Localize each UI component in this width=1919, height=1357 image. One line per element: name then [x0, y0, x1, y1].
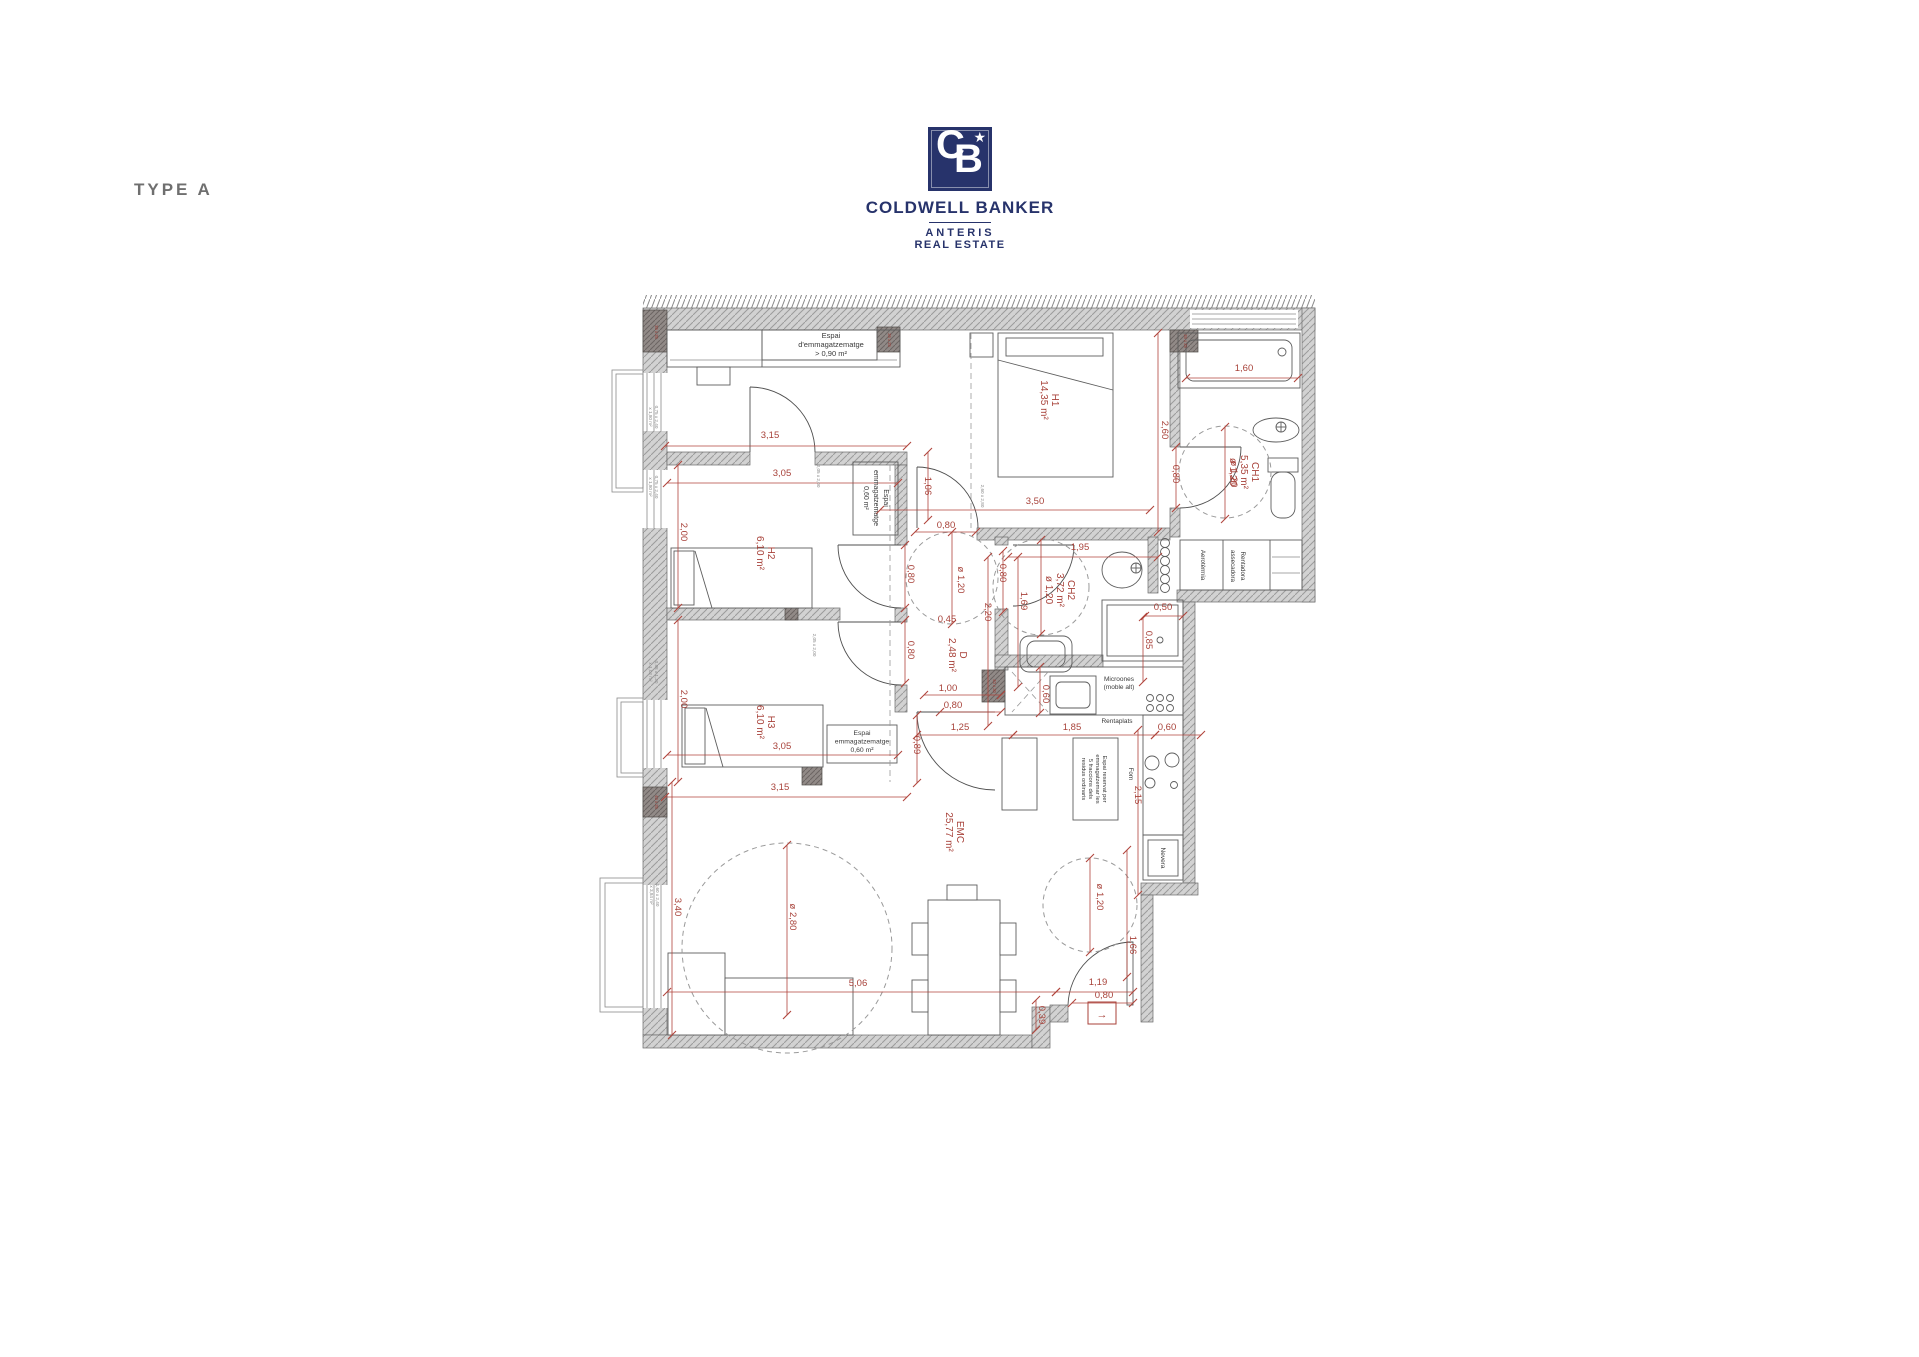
dimension-label: 3,05	[773, 741, 792, 752]
window-spec-label: 0,75 x 2,40x 1,80 m²	[648, 476, 659, 499]
svg-text:1,60: 1,60	[1235, 363, 1254, 374]
annotation-label: Espai reservat peremmagatzemar les5 frac…	[1080, 754, 1107, 803]
svg-text:2,05 x 2,00: 2,05 x 2,00	[816, 465, 821, 488]
window-spec-label: 1,60 x 2,40x 3,84 m²	[649, 884, 660, 907]
dimension-label: 0,89	[911, 736, 922, 755]
pillar-spec-label: 40 x 25	[654, 795, 659, 809]
window-icon	[641, 885, 669, 1008]
window-spec-labels: 0,75 x 2,40x 1,80 m²0,75 x 2,40x 1,80 m²…	[648, 406, 985, 907]
dimension-label: 0,80	[937, 520, 956, 531]
svg-text:14,35 m²: 14,35 m²	[1038, 380, 1049, 420]
svg-text:H1: H1	[1049, 394, 1060, 407]
dining-table	[912, 885, 1016, 1035]
kitchen-island	[1002, 738, 1037, 810]
svg-text:0,60 m²: 0,60 m²	[862, 486, 869, 510]
svg-text:2,60: 2,60	[1159, 421, 1170, 440]
sink-ch1	[1253, 418, 1299, 442]
sink-ch2	[1102, 552, 1142, 588]
svg-text:1,69: 1,69	[1018, 592, 1029, 611]
annotation-label: Rentaplats	[1101, 718, 1133, 725]
svg-text:0,39: 0,39	[1036, 1006, 1047, 1025]
svg-text:2,00: 2,00	[678, 690, 689, 709]
pillar	[802, 765, 822, 785]
dimension-label: 0,80	[905, 565, 916, 584]
svg-text:1,25: 1,25	[951, 722, 970, 733]
annotation-label: Rentadoraassecadora	[1229, 550, 1246, 583]
svg-text:3,40: 3,40	[672, 898, 683, 917]
svg-text:3,50: 3,50	[1026, 496, 1045, 507]
dimension-label: 0,80	[1170, 465, 1181, 484]
window-icon	[1190, 310, 1298, 328]
dimension-label: 5,06	[849, 978, 868, 989]
page: TYPE A C B ★ COLDWELL BANKER ANTERIS REA…	[0, 0, 1919, 1357]
svg-text:→: →	[1097, 1009, 1108, 1021]
annotation-label: Espaiemmagatzematge0,60 m²	[835, 730, 890, 754]
svg-text:5 fraccions dels: 5 fraccions dels	[1087, 759, 1093, 799]
svg-text:0,60: 0,60	[1158, 722, 1177, 733]
pillar-spec-label: 40 x 30	[992, 679, 997, 693]
sofa	[668, 953, 853, 1035]
svg-text:Rentaplats: Rentaplats	[1101, 718, 1133, 725]
balcony	[600, 370, 643, 1012]
svg-text:0,80: 0,80	[937, 520, 956, 531]
svg-text:EMC: EMC	[954, 821, 965, 843]
svg-text:2,15: 2,15	[1132, 786, 1143, 805]
svg-text:35 x 25: 35 x 25	[1183, 334, 1188, 348]
svg-text:0,50: 0,50	[1154, 602, 1173, 613]
svg-text:ø 1,20: ø 1,20	[955, 567, 966, 594]
annotation-label: Espaid'emmagatzematge> 0,90 m²	[798, 331, 864, 358]
svg-text:3,05: 3,05	[773, 468, 792, 479]
dimension-label: 2,15	[1132, 786, 1143, 805]
svg-text:0,60 m²: 0,60 m²	[850, 747, 874, 754]
dimension-label: 1,95	[1071, 542, 1090, 553]
dimension-label: 2,60	[1159, 421, 1170, 440]
svg-text:1,06: 1,06	[922, 477, 933, 496]
dimension-label: 3,40	[672, 898, 683, 917]
dimension-label: 3,15	[771, 782, 790, 793]
svg-text:0,80: 0,80	[1095, 990, 1114, 1001]
dimension-label: 0,60	[1158, 722, 1177, 733]
room-label: CH23,72 m²ø 1,20	[1043, 573, 1076, 608]
svg-text:0,80: 0,80	[944, 700, 963, 711]
svg-text:Rentadora: Rentadora	[1239, 552, 1246, 581]
svg-text:35 x 25: 35 x 25	[887, 333, 892, 347]
room-label: D2,48 m²	[946, 638, 968, 673]
dimension-label: ø 1,20	[1094, 884, 1105, 911]
svg-text:0,88 x 1,20: 0,88 x 1,20	[654, 661, 659, 684]
svg-text:6,10 m²: 6,10 m²	[754, 536, 765, 571]
svg-text:H3: H3	[765, 716, 776, 729]
annotation-label: Espaiemmagatzematge0,60 m²	[862, 470, 889, 526]
room-label: EMC25,77 m²	[943, 812, 965, 852]
room-label: CH15,35 m²ø 1,20	[1227, 455, 1260, 490]
svg-text:CH1: CH1	[1249, 462, 1260, 482]
svg-text:0,60: 0,60	[1040, 685, 1051, 704]
annotation-label: Microones(moble alt)	[1104, 676, 1135, 691]
pillar-spec-label: 35 x 25	[654, 325, 659, 339]
dimension-label: 0,85	[1143, 631, 1154, 650]
svg-text:Forn: Forn	[1127, 768, 1134, 781]
svg-text:40 x 25: 40 x 25	[654, 795, 659, 809]
dimension-label: 1,85	[1063, 722, 1082, 733]
svg-text:0,75 x 2,40: 0,75 x 2,40	[654, 406, 659, 429]
svg-text:0,80: 0,80	[1170, 465, 1181, 484]
svg-text:CH2: CH2	[1065, 580, 1076, 600]
svg-text:Microones: Microones	[1104, 676, 1135, 683]
svg-text:5,06: 5,06	[849, 978, 868, 989]
svg-text:ø 1,20: ø 1,20	[1094, 884, 1105, 911]
svg-text:1,00: 1,00	[939, 683, 958, 694]
dimension-label: 2,00	[678, 690, 689, 709]
svg-text:3,05: 3,05	[773, 741, 792, 752]
svg-text:Espai: Espai	[853, 730, 870, 737]
annotation-label: Aerotèrmia	[1199, 550, 1206, 581]
bed-h2	[671, 548, 812, 608]
svg-text:3,15: 3,15	[771, 782, 790, 793]
svg-text:Espai: Espai	[882, 489, 889, 507]
svg-text:ø 1,20: ø 1,20	[1043, 576, 1054, 605]
svg-text:2,00: 2,00	[678, 523, 689, 542]
svg-text:2,05 x 2,00: 2,05 x 2,00	[812, 634, 817, 657]
svg-text:Aerotèrmia: Aerotèrmia	[1199, 550, 1206, 581]
svg-text:(moble alt): (moble alt)	[1104, 684, 1135, 691]
svg-text:1,19: 1,19	[1089, 977, 1108, 988]
svg-text:0,89: 0,89	[911, 736, 922, 755]
svg-text:1,95: 1,95	[1071, 542, 1090, 553]
svg-text:5,35 m²: 5,35 m²	[1238, 455, 1249, 490]
svg-text:0,45: 0,45	[938, 614, 957, 625]
dimension-label: 1,60	[1235, 363, 1254, 374]
dimension-label: 0,80	[905, 641, 916, 660]
svg-text:2,48 m²: 2,48 m²	[946, 638, 957, 673]
svg-text:1,60 x 2,40: 1,60 x 2,40	[655, 884, 660, 907]
annotation-label: Nevera	[1159, 848, 1166, 869]
svg-text:D: D	[957, 651, 968, 658]
svg-text:1,66: 1,66	[1127, 936, 1138, 955]
svg-text:assecadora: assecadora	[1229, 550, 1236, 583]
svg-text:Espai reservat per: Espai reservat per	[1101, 755, 1107, 802]
svg-text:0,80: 0,80	[905, 641, 916, 660]
svg-text:0,80: 0,80	[905, 565, 916, 584]
window-spec-label: 2,60 x 2,80	[980, 485, 985, 508]
svg-text:40 x 30: 40 x 30	[992, 679, 997, 693]
svg-text:3,72 m²: 3,72 m²	[1054, 573, 1065, 608]
dimension-label: ø 2,80	[787, 904, 798, 931]
door-icon	[838, 622, 901, 685]
svg-text:35 x 25: 35 x 25	[654, 325, 659, 339]
svg-text:x 1,02 m²: x 1,02 m²	[648, 662, 653, 682]
dimension-label: 2,20	[982, 603, 993, 622]
svg-text:0,75 x 2,40: 0,75 x 2,40	[654, 476, 659, 499]
svg-text:0,80: 0,80	[997, 564, 1008, 583]
toilet-ch1	[1268, 458, 1298, 518]
dimension-label: 0,60	[1040, 685, 1051, 704]
svg-text:ø 1,20: ø 1,20	[1227, 458, 1238, 487]
dimension-label: 3,15	[761, 430, 780, 441]
floor-plan: 3,153,052,002,003,053,151,060,800,80ø 1,…	[0, 0, 1919, 1357]
svg-text:3,15: 3,15	[761, 430, 780, 441]
dimension-label: 2,00	[678, 523, 689, 542]
dimension-label: 3,05	[773, 468, 792, 479]
svg-text:x 1,80 m²: x 1,80 m²	[648, 407, 653, 427]
dimension-label: 0,80	[997, 564, 1008, 583]
svg-text:emmagatzematge: emmagatzematge	[872, 470, 879, 526]
pillar-spec-label: 35 x 25	[1183, 334, 1188, 348]
svg-text:2,20: 2,20	[982, 603, 993, 622]
door-icon	[838, 545, 901, 608]
dimension-label: 0,50	[1154, 602, 1173, 613]
svg-text:Nevera: Nevera	[1159, 848, 1166, 869]
svg-text:0,85: 0,85	[1143, 631, 1154, 650]
pillar-spec-label: 35 x 25	[887, 333, 892, 347]
dimension-label: 0,80	[944, 700, 963, 711]
svg-text:6,10 m²: 6,10 m²	[754, 705, 765, 740]
window-spec-label: 2,05 x 2,00	[816, 465, 821, 488]
svg-text:emmagatzematge: emmagatzematge	[835, 739, 890, 746]
svg-text:residus ordinaris: residus ordinaris	[1080, 758, 1086, 801]
svg-text:> 0,90 m²: > 0,90 m²	[815, 349, 847, 358]
svg-text:x 1,80 m²: x 1,80 m²	[648, 477, 653, 497]
dimension-label: ø 1,20	[955, 567, 966, 594]
dimension-label: 3,50	[1026, 496, 1045, 507]
dimension-label: 1,69	[1018, 592, 1029, 611]
dimension-label: 0,80	[1095, 990, 1114, 1001]
svg-text:1,85: 1,85	[1063, 722, 1082, 733]
dimension-label: 1,00	[939, 683, 958, 694]
duct	[1161, 539, 1170, 593]
svg-text:d'emmagatzematge: d'emmagatzematge	[798, 340, 864, 349]
entrance-marker: →	[1088, 1002, 1116, 1024]
window-spec-label: 0,88 x 1,20x 1,02 m²	[648, 661, 659, 684]
door-icon	[750, 387, 815, 452]
svg-text:ø 2,80: ø 2,80	[787, 904, 798, 931]
svg-text:emmagatzemar les: emmagatzemar les	[1094, 754, 1100, 803]
svg-text:2,60 x 2,80: 2,60 x 2,80	[980, 485, 985, 508]
dimension-label: 0,39	[1036, 1006, 1047, 1025]
dimension-label: 1,19	[1089, 977, 1108, 988]
bed-h3	[682, 705, 823, 767]
dimension-label: 1,06	[922, 477, 933, 496]
window-spec-label: 2,05 x 2,00	[812, 634, 817, 657]
dimension-label: 0,45	[938, 614, 957, 625]
wardrobe	[667, 330, 900, 385]
dimension-label: 1,25	[951, 722, 970, 733]
svg-text:x 3,84 m²: x 3,84 m²	[649, 885, 654, 905]
svg-text:H2: H2	[765, 547, 776, 560]
svg-text:25,77 m²: 25,77 m²	[943, 812, 954, 852]
window-spec-label: 0,75 x 2,40x 1,80 m²	[648, 406, 659, 429]
dimension-label: 1,66	[1127, 936, 1138, 955]
annotation-label: Forn	[1127, 768, 1134, 781]
svg-text:Espai: Espai	[822, 331, 841, 340]
